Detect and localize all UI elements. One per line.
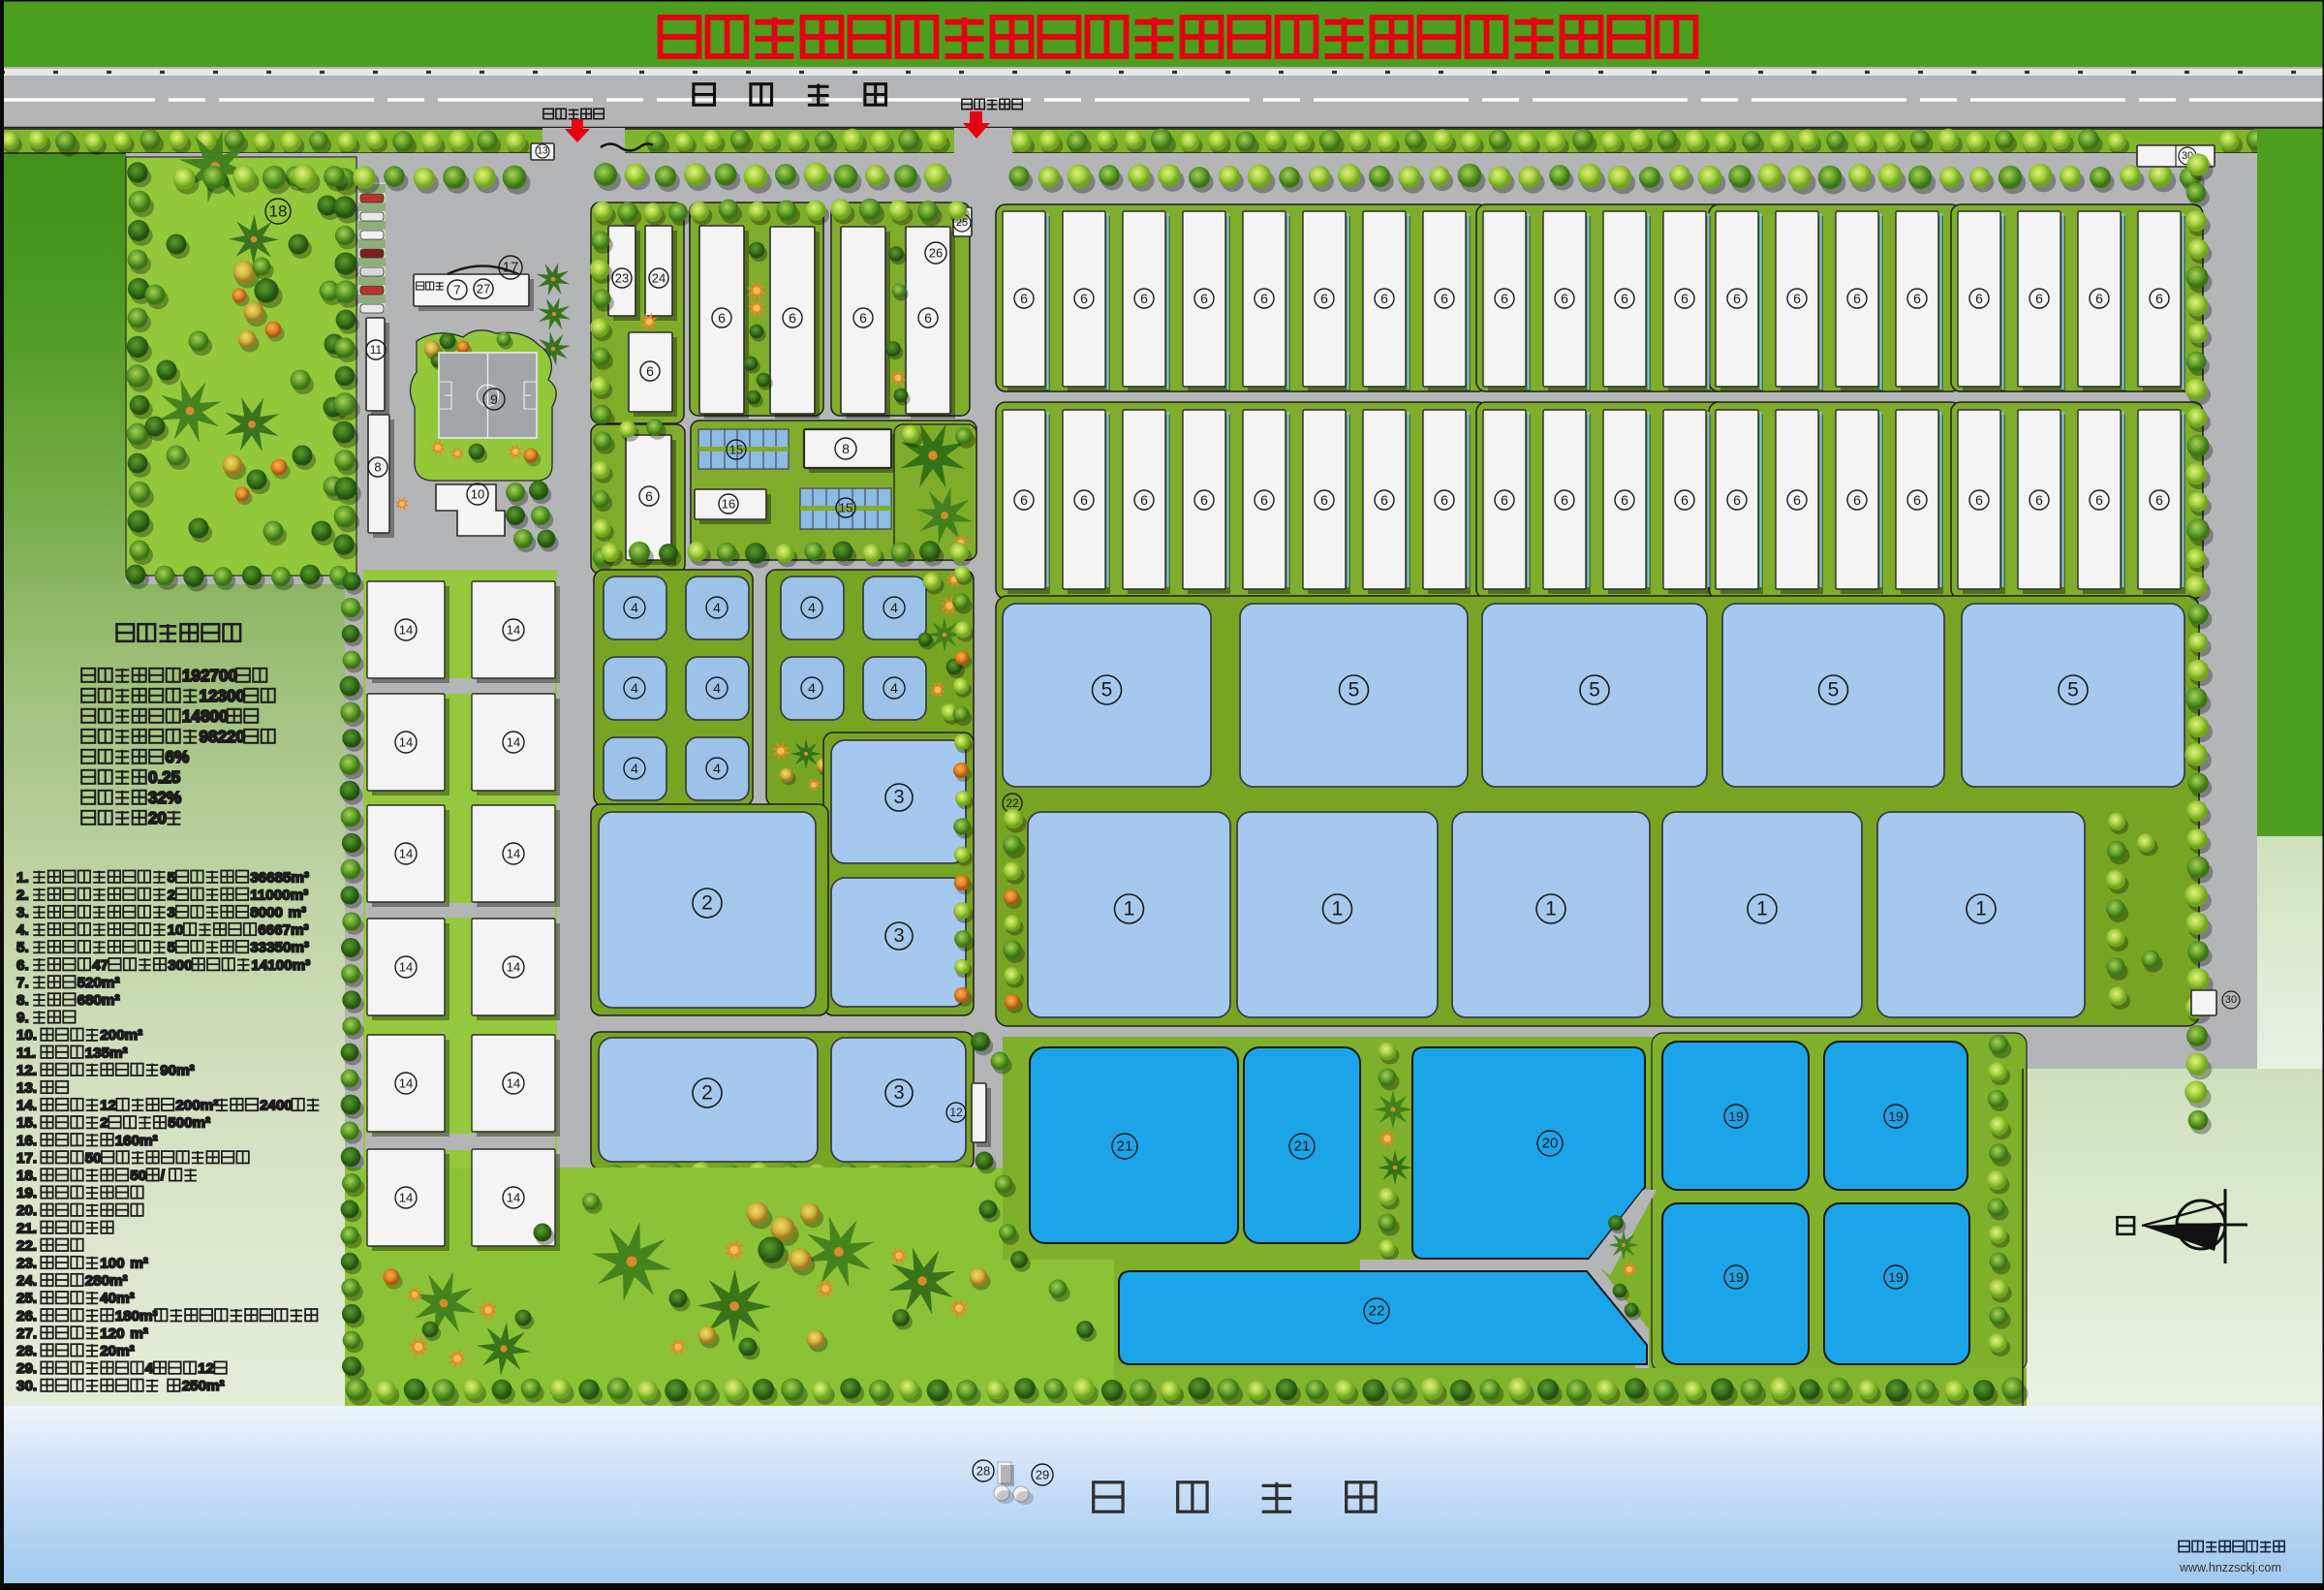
svg-text:22: 22 bbox=[1006, 796, 1019, 810]
svg-text:6: 6 bbox=[2095, 492, 2103, 508]
svg-text:14: 14 bbox=[507, 735, 520, 750]
svg-text:4: 4 bbox=[713, 761, 721, 776]
svg-text:192700: 192700 bbox=[182, 667, 237, 685]
svg-text:9.: 9. bbox=[16, 1010, 29, 1026]
svg-text:250m²: 250m² bbox=[182, 1378, 225, 1394]
svg-text:6: 6 bbox=[1260, 492, 1268, 508]
svg-text:www.hnzzsckj.com: www.hnzzsckj.com bbox=[2179, 1561, 2281, 1574]
svg-text:6: 6 bbox=[2035, 492, 2043, 508]
svg-text:12300: 12300 bbox=[200, 687, 246, 705]
svg-text:6: 6 bbox=[1380, 492, 1388, 508]
svg-text:m²: m² bbox=[130, 1325, 148, 1342]
svg-text:18.: 18. bbox=[16, 1168, 37, 1184]
svg-text:33350m³: 33350m³ bbox=[250, 940, 309, 956]
svg-text:4: 4 bbox=[890, 680, 898, 696]
svg-text:6: 6 bbox=[1681, 492, 1689, 508]
svg-text:4: 4 bbox=[631, 680, 638, 696]
svg-text:1: 1 bbox=[1332, 898, 1344, 920]
svg-text:6: 6 bbox=[1260, 291, 1268, 306]
svg-text:6: 6 bbox=[2035, 291, 2043, 306]
svg-text:1: 1 bbox=[1756, 898, 1768, 920]
svg-text:6: 6 bbox=[1793, 492, 1801, 508]
svg-text:5: 5 bbox=[1589, 679, 1600, 701]
svg-text:m³: m³ bbox=[288, 905, 306, 921]
svg-text:6: 6 bbox=[1853, 291, 1861, 306]
svg-text:4: 4 bbox=[890, 600, 898, 615]
svg-text:6: 6 bbox=[1080, 291, 1088, 306]
svg-text:7: 7 bbox=[453, 283, 460, 297]
svg-text:15: 15 bbox=[729, 443, 743, 457]
svg-text:19.: 19. bbox=[16, 1185, 37, 1201]
svg-text:6: 6 bbox=[1913, 291, 1921, 306]
svg-text:8: 8 bbox=[842, 441, 850, 456]
svg-text:32%: 32% bbox=[148, 789, 181, 807]
svg-text:1: 1 bbox=[1975, 898, 1987, 920]
svg-text:280m²: 280m² bbox=[85, 1273, 128, 1290]
svg-text:11: 11 bbox=[370, 343, 383, 357]
svg-text:40m²: 40m² bbox=[100, 1291, 134, 1307]
svg-text:3: 3 bbox=[893, 1082, 904, 1104]
svg-text:90m²: 90m² bbox=[160, 1062, 194, 1078]
svg-text:5.: 5. bbox=[16, 940, 29, 956]
svg-text:50: 50 bbox=[85, 1150, 102, 1167]
svg-text:12.: 12. bbox=[16, 1062, 37, 1078]
svg-text:6: 6 bbox=[1020, 291, 1028, 306]
svg-text:10: 10 bbox=[471, 487, 484, 502]
svg-text:25.: 25. bbox=[16, 1291, 37, 1307]
svg-text:21: 21 bbox=[1117, 1138, 1133, 1155]
svg-text:30.: 30. bbox=[16, 1378, 37, 1394]
svg-text:2: 2 bbox=[701, 1082, 713, 1105]
svg-text:17: 17 bbox=[503, 260, 519, 276]
svg-text:6667m³: 6667m³ bbox=[258, 922, 308, 939]
svg-text:3: 3 bbox=[893, 925, 904, 947]
svg-text:6: 6 bbox=[789, 310, 796, 326]
svg-text:6: 6 bbox=[1320, 492, 1328, 508]
svg-text:14: 14 bbox=[507, 960, 520, 975]
svg-text:520m²: 520m² bbox=[77, 975, 120, 991]
svg-text:14: 14 bbox=[507, 1191, 520, 1205]
svg-text:6: 6 bbox=[1561, 492, 1568, 508]
svg-text:20: 20 bbox=[148, 809, 167, 827]
svg-text:5: 5 bbox=[1348, 679, 1360, 701]
svg-text:6.: 6. bbox=[16, 957, 29, 974]
svg-text:12: 12 bbox=[100, 1098, 116, 1114]
svg-text:8: 8 bbox=[374, 460, 381, 475]
svg-text:120: 120 bbox=[100, 1325, 124, 1342]
svg-text:14: 14 bbox=[399, 1191, 413, 1205]
svg-text:12: 12 bbox=[949, 1106, 963, 1119]
svg-text:15.: 15. bbox=[16, 1115, 37, 1132]
svg-text:6: 6 bbox=[1501, 492, 1508, 508]
svg-text:5: 5 bbox=[168, 869, 176, 886]
svg-text:6: 6 bbox=[1020, 492, 1028, 508]
svg-text:13.: 13. bbox=[16, 1080, 37, 1097]
svg-text:6%: 6% bbox=[166, 748, 190, 766]
svg-text:6: 6 bbox=[1140, 291, 1148, 306]
svg-text:6: 6 bbox=[1793, 291, 1801, 306]
svg-text:24: 24 bbox=[652, 271, 666, 286]
svg-text:22: 22 bbox=[1369, 1303, 1385, 1320]
svg-text:6: 6 bbox=[1733, 291, 1741, 306]
svg-text:0.25: 0.25 bbox=[148, 768, 181, 787]
svg-text:28: 28 bbox=[976, 1464, 990, 1479]
svg-text:20.: 20. bbox=[16, 1202, 37, 1219]
svg-text:3.: 3. bbox=[16, 905, 29, 921]
svg-text:6: 6 bbox=[1380, 291, 1388, 306]
svg-text:6: 6 bbox=[1853, 492, 1861, 508]
svg-text:8.: 8. bbox=[16, 992, 29, 1009]
svg-text:6: 6 bbox=[2155, 291, 2163, 306]
svg-text:22.: 22. bbox=[16, 1237, 37, 1254]
svg-text:19: 19 bbox=[1888, 1269, 1904, 1285]
svg-text:6: 6 bbox=[1913, 492, 1921, 508]
svg-text:14.: 14. bbox=[16, 1098, 37, 1114]
svg-text:16.: 16. bbox=[16, 1133, 37, 1149]
svg-text:21.: 21. bbox=[16, 1220, 37, 1236]
svg-text:11000m³: 11000m³ bbox=[250, 887, 308, 903]
svg-text:5: 5 bbox=[1828, 679, 1840, 701]
svg-text:200m²: 200m² bbox=[175, 1098, 218, 1114]
svg-text:6: 6 bbox=[924, 310, 932, 326]
svg-text:15: 15 bbox=[839, 501, 852, 515]
svg-text:4: 4 bbox=[713, 680, 721, 696]
svg-text:14: 14 bbox=[507, 847, 520, 861]
svg-text:4: 4 bbox=[631, 761, 638, 776]
svg-text:6: 6 bbox=[1975, 492, 1983, 508]
svg-text:19: 19 bbox=[1888, 1108, 1904, 1124]
svg-text:14: 14 bbox=[399, 960, 413, 975]
svg-text:6: 6 bbox=[1441, 291, 1448, 306]
svg-text:16: 16 bbox=[722, 497, 735, 512]
svg-text:7.: 7. bbox=[16, 975, 29, 991]
svg-text:11.: 11. bbox=[16, 1044, 36, 1061]
svg-text:6: 6 bbox=[859, 310, 867, 326]
svg-text:98220: 98220 bbox=[200, 728, 246, 746]
svg-text:3: 3 bbox=[168, 905, 175, 921]
svg-text:2.: 2. bbox=[16, 887, 29, 903]
svg-text:10.: 10. bbox=[16, 1027, 37, 1044]
svg-text:30: 30 bbox=[2225, 994, 2237, 1006]
svg-text:36685m³: 36685m³ bbox=[250, 869, 309, 886]
svg-text:160m²: 160m² bbox=[115, 1133, 158, 1149]
svg-text:2: 2 bbox=[100, 1115, 108, 1132]
svg-text:17.: 17. bbox=[16, 1150, 37, 1167]
svg-text:28.: 28. bbox=[16, 1343, 37, 1359]
svg-text:14: 14 bbox=[399, 623, 413, 638]
svg-text:135m²: 135m² bbox=[85, 1044, 128, 1061]
svg-text:29: 29 bbox=[1036, 1468, 1049, 1482]
svg-text:6: 6 bbox=[718, 310, 726, 326]
svg-text:5: 5 bbox=[168, 940, 176, 956]
svg-text:4: 4 bbox=[808, 600, 816, 615]
svg-text:300: 300 bbox=[168, 957, 192, 974]
svg-text:6: 6 bbox=[2155, 492, 2163, 508]
svg-text:23.: 23. bbox=[16, 1256, 37, 1272]
svg-text:20m²: 20m² bbox=[100, 1343, 134, 1359]
svg-text:26: 26 bbox=[929, 246, 943, 261]
svg-text:6: 6 bbox=[1140, 492, 1148, 508]
svg-text:6: 6 bbox=[1080, 492, 1088, 508]
svg-text:2400: 2400 bbox=[260, 1098, 293, 1114]
svg-text:6: 6 bbox=[1501, 291, 1508, 306]
svg-text:6: 6 bbox=[1441, 492, 1448, 508]
svg-text:50: 50 bbox=[130, 1168, 146, 1184]
svg-text:14: 14 bbox=[399, 847, 413, 861]
svg-text:180m³: 180m³ bbox=[115, 1308, 158, 1325]
svg-text:6: 6 bbox=[1733, 492, 1741, 508]
svg-text:20: 20 bbox=[1542, 1136, 1559, 1152]
svg-text:14: 14 bbox=[507, 1076, 520, 1091]
svg-text:14: 14 bbox=[399, 735, 413, 750]
svg-text:6: 6 bbox=[646, 363, 654, 379]
svg-text:6: 6 bbox=[1681, 291, 1689, 306]
svg-text:26.: 26. bbox=[16, 1308, 37, 1325]
svg-text:m²: m² bbox=[130, 1256, 148, 1272]
svg-text:100: 100 bbox=[100, 1256, 124, 1272]
svg-text:6: 6 bbox=[1200, 291, 1208, 306]
svg-text:1.: 1. bbox=[16, 869, 29, 886]
svg-text:6: 6 bbox=[1200, 492, 1208, 508]
svg-text:47: 47 bbox=[92, 957, 108, 974]
svg-text:5: 5 bbox=[2067, 679, 2079, 701]
svg-text:10: 10 bbox=[168, 922, 184, 939]
svg-text:1: 1 bbox=[1124, 898, 1135, 920]
svg-text:19: 19 bbox=[1728, 1108, 1744, 1124]
svg-text:500m²: 500m² bbox=[168, 1115, 210, 1132]
svg-text:3: 3 bbox=[893, 787, 904, 808]
svg-text:6: 6 bbox=[1561, 291, 1568, 306]
svg-text:2: 2 bbox=[168, 887, 175, 903]
svg-text:27: 27 bbox=[477, 282, 490, 296]
svg-text:6: 6 bbox=[2095, 291, 2103, 306]
svg-text:4.: 4. bbox=[16, 922, 29, 939]
svg-text:14800: 14800 bbox=[182, 707, 229, 726]
svg-text:12: 12 bbox=[198, 1360, 214, 1377]
svg-text:5: 5 bbox=[1101, 679, 1113, 701]
svg-text:6: 6 bbox=[1621, 492, 1628, 508]
svg-text:4: 4 bbox=[713, 600, 721, 615]
svg-text:14100m³: 14100m³ bbox=[251, 957, 310, 974]
svg-text:19: 19 bbox=[1728, 1269, 1744, 1285]
svg-text:4: 4 bbox=[808, 680, 816, 696]
svg-text:6: 6 bbox=[645, 488, 653, 504]
svg-text:2: 2 bbox=[701, 892, 713, 915]
svg-text:4: 4 bbox=[631, 600, 638, 615]
svg-text:680m²: 680m² bbox=[77, 992, 120, 1009]
svg-text:14: 14 bbox=[399, 1076, 413, 1091]
svg-text:6: 6 bbox=[1320, 291, 1328, 306]
svg-text:23: 23 bbox=[615, 271, 629, 286]
svg-text:27.: 27. bbox=[16, 1325, 37, 1342]
svg-text:13: 13 bbox=[537, 146, 548, 157]
svg-text:14: 14 bbox=[507, 623, 520, 638]
svg-text:6: 6 bbox=[1621, 291, 1628, 306]
svg-text:18: 18 bbox=[269, 203, 288, 221]
svg-text:1: 1 bbox=[1545, 898, 1557, 920]
svg-text:9: 9 bbox=[490, 391, 498, 407]
svg-text:29.: 29. bbox=[16, 1360, 37, 1377]
svg-text:24.: 24. bbox=[16, 1273, 37, 1290]
svg-text:6: 6 bbox=[1975, 291, 1983, 306]
svg-text:21: 21 bbox=[1294, 1138, 1311, 1155]
svg-text:4: 4 bbox=[145, 1360, 154, 1377]
svg-text:8000: 8000 bbox=[250, 905, 283, 921]
svg-text:200m²: 200m² bbox=[100, 1027, 142, 1044]
